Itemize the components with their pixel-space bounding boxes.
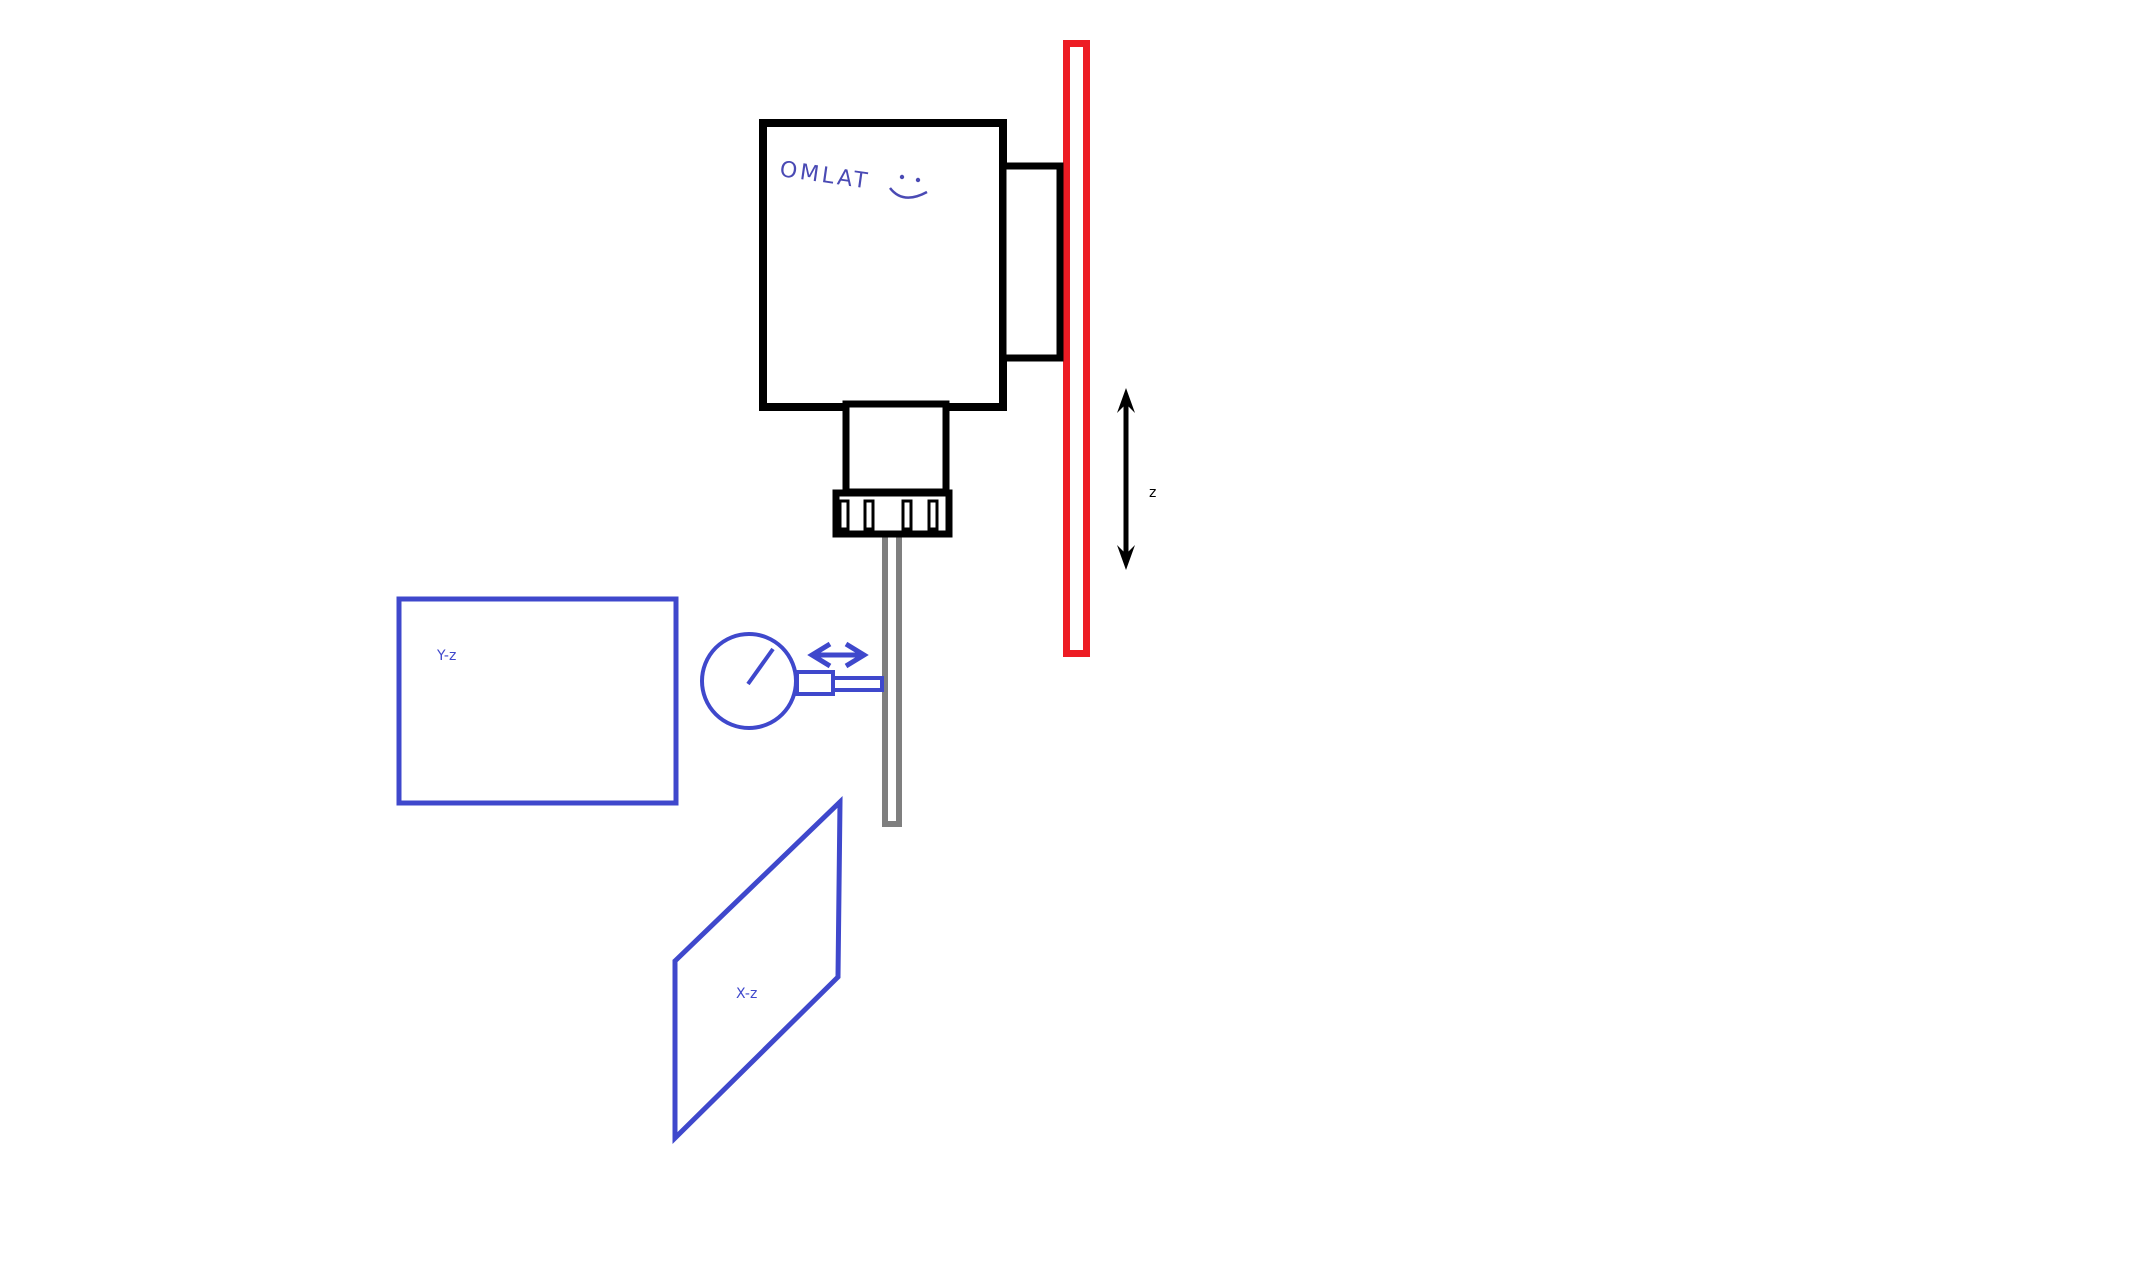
sweep-arrow [812, 644, 864, 666]
xz-plane-label: X-z [736, 986, 757, 1002]
collet-slot [840, 501, 848, 529]
spindle-side-block [1003, 166, 1060, 358]
z-axis-arrow [1117, 388, 1135, 570]
dial-indicator-plunger [833, 678, 882, 690]
collet-slot [865, 501, 873, 529]
collet-slot [903, 501, 911, 529]
collet-slot [929, 501, 937, 529]
yz-plane-label: Y-z [436, 648, 456, 664]
red-column-bar [1067, 44, 1087, 654]
z-axis-label: z [1149, 485, 1156, 501]
paint-canvas: OMLAT z Y-z X-z [0, 0, 2133, 1282]
dial-indicator-stem [797, 672, 833, 694]
yz-plane-box [399, 599, 676, 803]
spindle-neck [846, 404, 946, 492]
test-bar [885, 530, 899, 824]
xz-plane-parallelogram [675, 802, 840, 1138]
